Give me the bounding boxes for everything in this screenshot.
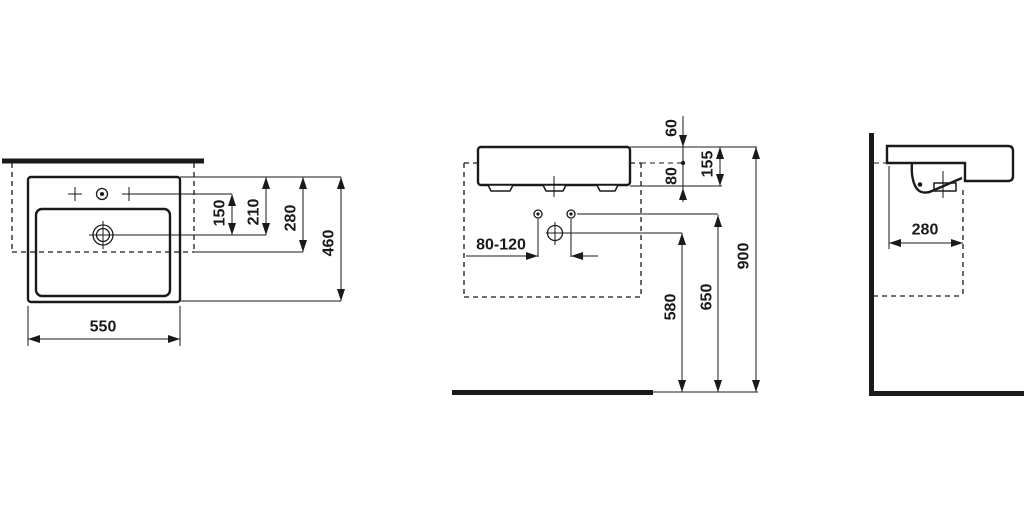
dim-label-60: 60	[664, 119, 681, 137]
arrow-left	[889, 239, 901, 247]
arrow-up	[752, 147, 760, 159]
arrow-up	[299, 177, 307, 189]
washbasin-technical-drawing: 150 210 280 460 550	[0, 0, 1024, 512]
arrow-right	[951, 239, 963, 247]
dimension-280-top: 280	[283, 177, 308, 252]
front-view: 80-120 60 80 155 580	[452, 116, 760, 393]
dim-label-210: 210	[246, 199, 263, 226]
dimension-550: 550	[28, 306, 180, 346]
dim-label-280-side: 280	[912, 222, 939, 239]
dimension-210: 210	[246, 177, 271, 235]
basin-outer-rim	[28, 177, 180, 302]
dimension-60-80: 60 80	[664, 116, 688, 202]
dim-label-650: 650	[699, 284, 716, 311]
hole-center	[536, 212, 539, 215]
dimension-150: 150	[212, 194, 237, 235]
arrow-right	[526, 252, 538, 260]
dimension-900: 900	[736, 147, 761, 392]
arrow-down	[262, 223, 270, 235]
dim-label-80-120: 80-120	[476, 237, 526, 254]
arrow-up	[228, 194, 236, 206]
dim-label-155: 155	[700, 151, 717, 178]
top-view: 150 210 280 460 550	[2, 161, 345, 346]
basin-side-profile	[887, 146, 1013, 181]
drawing-canvas: 150 210 280 460 550	[0, 0, 1024, 512]
arrow-up	[337, 177, 345, 189]
dim-label-80: 80	[664, 167, 681, 185]
dimension-155: 155	[700, 147, 725, 186]
fixing-hole-right	[567, 210, 575, 218]
fixing-hole-left	[534, 210, 542, 218]
dim-label-580: 580	[663, 294, 680, 321]
arrow-down	[714, 380, 722, 392]
arrow-up	[678, 233, 686, 245]
arrow-down	[716, 174, 724, 186]
dim-label-460: 460	[321, 230, 338, 257]
hole-center	[569, 212, 572, 215]
dimension-460: 460	[321, 177, 346, 301]
drain-outlet	[546, 222, 573, 245]
drain-point	[918, 182, 923, 187]
dim-label-550: 550	[90, 319, 117, 336]
dim-label-900: 900	[736, 243, 753, 270]
arrow-up	[716, 147, 724, 159]
tap-hole-center	[100, 192, 104, 196]
dimension-dot	[681, 161, 685, 165]
side-view: 280	[869, 133, 1024, 395]
arrow-down	[678, 380, 686, 392]
basin-foot-right	[597, 185, 618, 191]
arrow-left	[28, 335, 40, 343]
dimension-280-side: 280	[889, 166, 963, 249]
arrow-down	[337, 289, 345, 301]
dimension-650: 650	[699, 215, 723, 392]
basin-foot-left	[488, 185, 513, 191]
dim-label-280: 280	[283, 205, 300, 232]
arrow-left	[571, 252, 583, 260]
arrow-right	[168, 335, 180, 343]
dimension-80-120: 80-120	[466, 219, 598, 260]
arrow-up	[679, 188, 687, 200]
dim-label-150: 150	[212, 200, 229, 227]
arrow-down	[752, 380, 760, 392]
arrow-up	[714, 215, 722, 227]
arrow-up	[262, 177, 270, 189]
arrow-down	[299, 240, 307, 252]
arrow-down	[228, 223, 236, 235]
dimension-580: 580	[663, 233, 687, 392]
